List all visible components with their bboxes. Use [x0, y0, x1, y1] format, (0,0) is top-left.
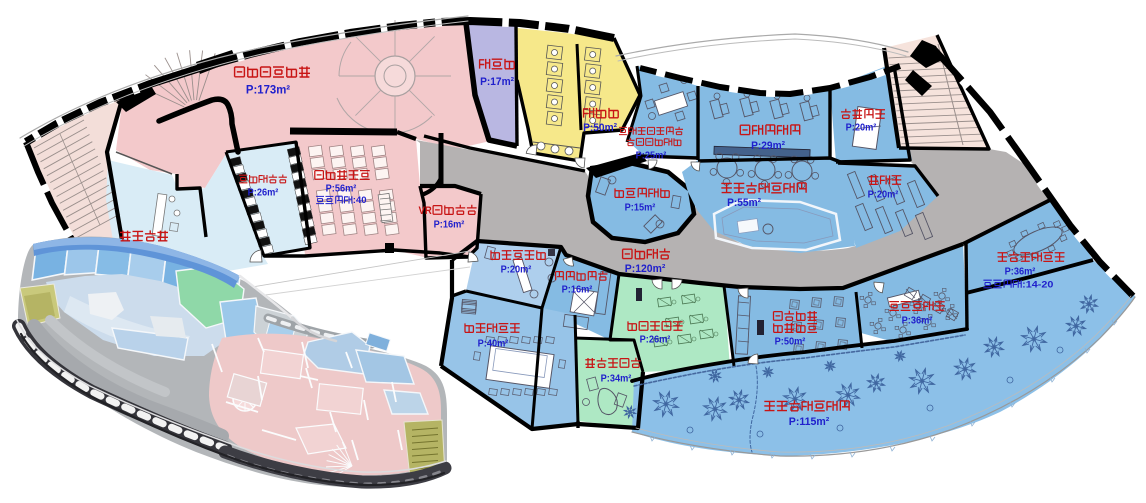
svg-text:P:55m²: P:55m² [727, 197, 761, 209]
svg-text::40: :40 [353, 195, 367, 205]
svg-text:P:115m²: P:115m² [789, 416, 830, 428]
svg-text:P:26m²: P:26m² [248, 188, 279, 199]
svg-text:P:50m²: P:50m² [775, 337, 806, 348]
svg-text:P:25m²: P:25m² [636, 151, 667, 162]
svg-text:P:20m²: P:20m² [846, 123, 877, 134]
svg-text:P:36m²: P:36m² [1005, 267, 1036, 278]
svg-text:VR: VR [419, 205, 432, 217]
svg-text:P:34m²: P:34m² [601, 374, 632, 385]
svg-text:P:17m²: P:17m² [480, 76, 514, 88]
svg-text:P:50m²: P:50m² [583, 122, 617, 134]
svg-text:P:20m²: P:20m² [868, 190, 899, 201]
svg-text:P:16m²: P:16m² [434, 220, 465, 231]
svg-text::14-20: :14-20 [1022, 279, 1053, 290]
svg-text:P:40m²: P:40m² [478, 339, 509, 350]
svg-text:P:16m²: P:16m² [562, 285, 593, 296]
svg-text:P:29m²: P:29m² [751, 140, 785, 152]
svg-text:P:120m²: P:120m² [625, 263, 666, 275]
svg-text:P:56m²: P:56m² [326, 184, 357, 195]
svg-text:P:15m²: P:15m² [625, 203, 656, 214]
svg-text:P:36m²: P:36m² [902, 316, 933, 327]
svg-text:P:173m²: P:173m² [246, 82, 290, 96]
svg-text:P:20m²: P:20m² [501, 265, 532, 276]
svg-text:P:26m²: P:26m² [640, 335, 671, 346]
